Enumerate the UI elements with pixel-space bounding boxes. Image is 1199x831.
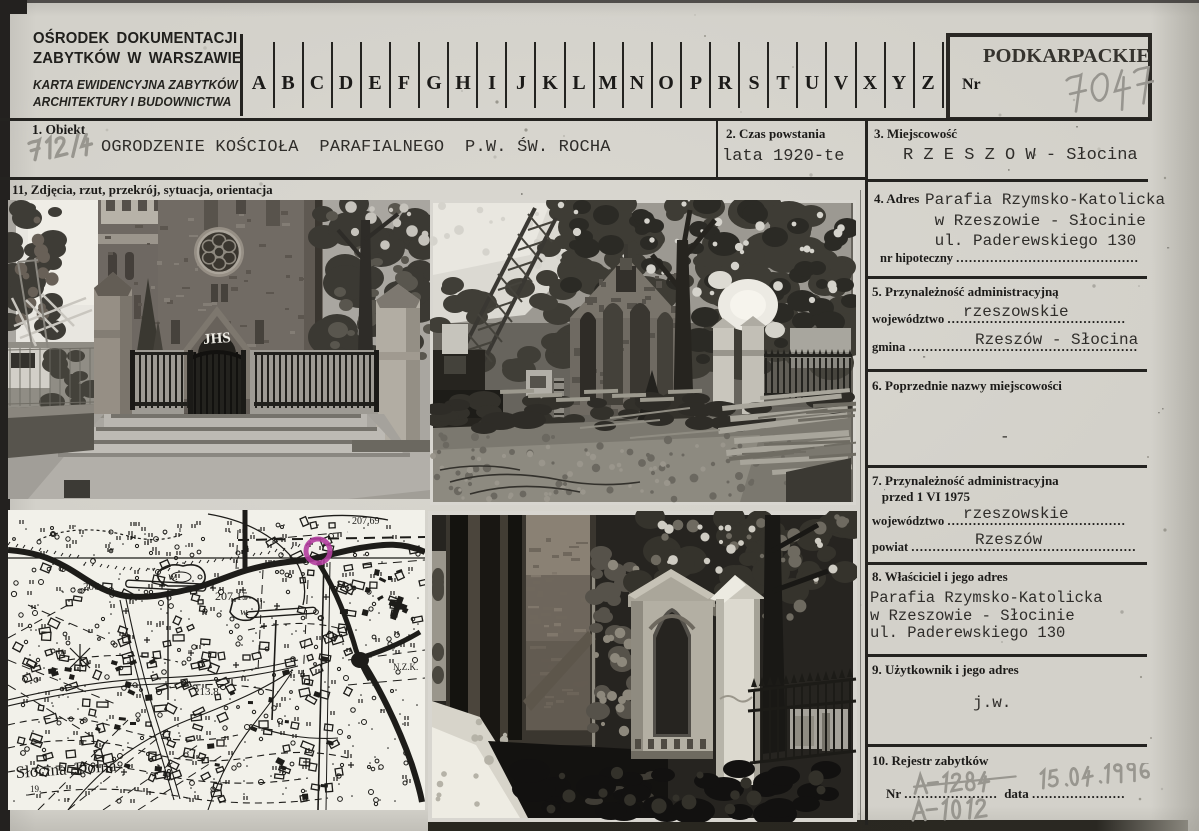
svg-text:19.: 19.: [30, 784, 41, 794]
svg-text:JHS: JHS: [203, 330, 232, 348]
svg-text:206.: 206.: [83, 581, 103, 593]
svg-text:207.69: 207.69: [352, 516, 380, 527]
svg-text:N.Z.K.: N.Z.K.: [393, 662, 418, 672]
svg-text:207.15: 207.15: [215, 589, 248, 603]
svg-text:213.8: 213.8: [194, 686, 219, 698]
svg-text:w.: w.: [168, 569, 178, 583]
svg-text:w.: w.: [240, 606, 249, 618]
